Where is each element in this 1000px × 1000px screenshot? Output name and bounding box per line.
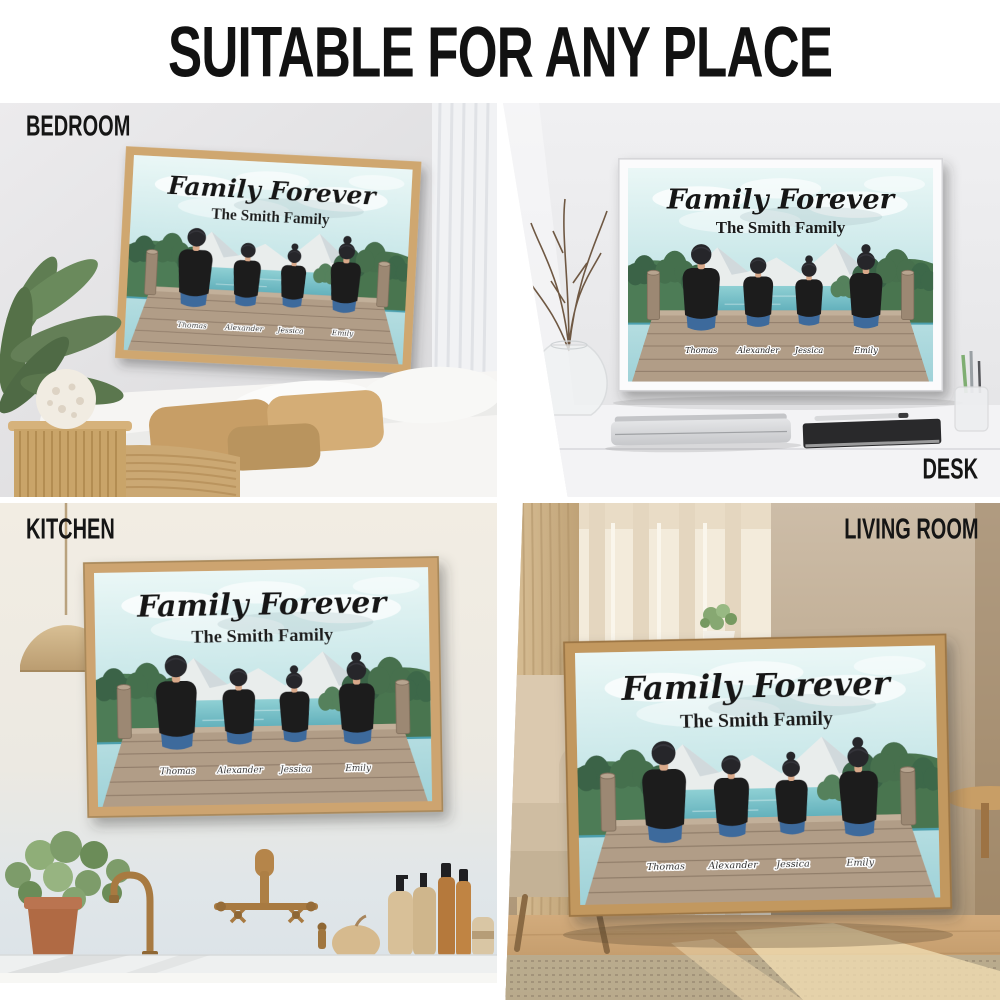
poster-name-3: Jessica: [275, 325, 303, 335]
room-label-kitchen: KITCHEN: [26, 513, 115, 546]
poster-title: Family Forever: [620, 664, 893, 708]
product-showcase: SUITABLE FOR ANY PLACE Family ForeverThe…: [0, 0, 1000, 1000]
framed-poster: Family ForeverThe Smith FamilyThomasAlex…: [564, 634, 951, 916]
poster-name-4: Emily: [853, 345, 878, 355]
poster-name-3: Jessica: [793, 345, 824, 355]
countertop: [0, 955, 497, 983]
poster-name-4: Emily: [344, 764, 372, 774]
poster-name-1: Thomas: [647, 861, 685, 873]
poster-name-2: Alexander: [216, 766, 264, 777]
poster-name-1: Thomas: [177, 320, 207, 331]
framed-poster: Family ForeverThe Smith FamilyThomasAlex…: [619, 159, 942, 391]
scene-desk: Family ForeverThe Smith FamilyThomasAlex…: [503, 103, 1000, 497]
poster-name-3: Jessica: [278, 765, 311, 776]
room-label-bedroom: BEDROOM: [26, 110, 130, 143]
scene-kitchen: Family ForeverThe Smith FamilyThomasAlex…: [0, 503, 497, 983]
poster-name-2: Alexander: [736, 345, 780, 355]
poster-name-1: Thomas: [685, 345, 717, 355]
nightstand: [8, 421, 132, 497]
poster-name-3: Jessica: [774, 859, 810, 871]
poster-name-4: Emily: [845, 857, 874, 869]
poster-shadow: [563, 922, 953, 948]
decor-vase: [36, 369, 96, 429]
poster-name-4: Emily: [331, 328, 355, 338]
framed-poster: Family ForeverThe Smith FamilyThomasAlex…: [84, 557, 443, 817]
framed-poster: Family ForeverThe Smith FamilyThomasAlex…: [115, 146, 421, 373]
poster-title: Family Forever: [666, 184, 897, 216]
room-label-desk: DESK: [922, 453, 978, 486]
laptop: [605, 413, 802, 453]
poster-subtitle: The Smith Family: [716, 218, 846, 237]
counter-knob: [318, 923, 327, 950]
poster-subtitle: The Smith Family: [191, 624, 334, 646]
scene-bedroom: Family ForeverThe Smith FamilyThomasAlex…: [0, 103, 497, 497]
scene-living-room: Family ForeverThe Smith FamilyThomasAlex…: [503, 503, 1000, 1000]
poster-title: Family Forever: [136, 585, 389, 624]
poster-name-2: Alexander: [707, 860, 759, 872]
poster-subtitle: The Smith Family: [680, 707, 833, 732]
poster-name-1: Thomas: [160, 767, 196, 778]
page-title-banner: SUITABLE FOR ANY PLACE: [0, 0, 1000, 103]
room-label-living-room: LIVING ROOM: [844, 513, 978, 546]
collage: Family ForeverThe Smith FamilyThomasAlex…: [0, 103, 1000, 1000]
page-title: SUITABLE FOR ANY PLACE: [168, 10, 832, 93]
